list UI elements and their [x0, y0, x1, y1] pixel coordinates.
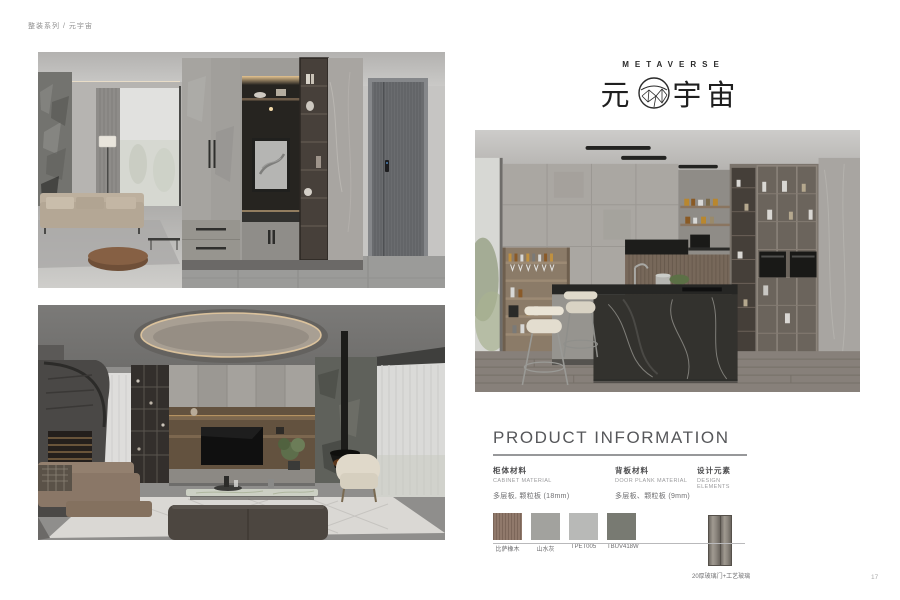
swatch-shanshui-gray: 山水灰: [531, 513, 560, 553]
entry-cabinet: [182, 58, 363, 270]
design-elements-label-zh: 设计元素: [697, 465, 747, 476]
back-panel-value: 多层板、颗粒板 (9mm): [615, 491, 697, 501]
cabinet-material-value: 多层板, 颗粒板 (18mm): [493, 491, 615, 501]
glass-door-panel-swatch: [708, 515, 732, 566]
back-panel-label-en: DOOR PLANK MATERIAL: [615, 478, 697, 484]
cabinet-material-block: 柜体材料 CABINET MATERIAL 多层板, 颗粒板 (18mm): [493, 465, 615, 501]
design-element-swatch: 20厚玻璃门+工艺玻璃: [700, 515, 740, 580]
oval-ceiling-light: [134, 309, 328, 363]
glass-display-column: [300, 58, 328, 260]
photo-entry-cabinet-living-room: [38, 52, 445, 288]
design-elements-label-en: DESIGN ELEMENTS: [697, 478, 747, 490]
breadcrumb: 整装系列 / 元宇宙: [28, 21, 93, 31]
entry-door: [368, 78, 428, 260]
swatch-pisa-oak: 比萨橡木: [493, 513, 522, 553]
tall-cabinets-right: [730, 158, 860, 363]
brand-logo: METAVERSE 元 宇宙: [583, 60, 758, 114]
display-niche: [242, 76, 300, 260]
globe-crystal-icon: [637, 76, 671, 110]
product-information-title: PRODUCT INFORMATION: [493, 428, 747, 448]
swatch-tpet005: TPET005: [569, 513, 598, 553]
photo-living-room-fireplace: [38, 305, 445, 540]
logo-zh-left: 元: [600, 72, 634, 114]
photo-kitchen-island: [475, 130, 860, 392]
bottom-rule: [493, 543, 745, 544]
window-right: [375, 347, 445, 497]
product-information-section: PRODUCT INFORMATION 柜体材料 CABINET MATERIA…: [493, 428, 747, 553]
ottoman: [88, 247, 148, 271]
sofa-front: [168, 505, 328, 540]
swatch-tbuv418w: TBUV418W: [607, 513, 636, 553]
design-element-caption: 20厚玻璃门+工艺玻璃: [692, 571, 732, 580]
page-number: 17: [871, 574, 878, 581]
sofa: [40, 193, 144, 234]
logo-zh-right: 宇宙: [673, 72, 741, 114]
design-elements-block: 设计元素 DESIGN ELEMENTS: [697, 465, 747, 501]
tv: [201, 427, 263, 465]
cabinet-material-label-en: CABINET MATERIAL: [493, 478, 615, 484]
cabinet-material-label-zh: 柜体材料: [493, 465, 615, 476]
logo-wordmark-en: METAVERSE: [589, 60, 758, 69]
title-rule: [493, 454, 747, 456]
back-panel-material-block: 背板材料 DOOR PLANK MATERIAL 多层板、颗粒板 (9mm): [615, 465, 697, 501]
back-panel-label-zh: 背板材料: [615, 465, 697, 476]
tv-wall: [131, 365, 315, 486]
